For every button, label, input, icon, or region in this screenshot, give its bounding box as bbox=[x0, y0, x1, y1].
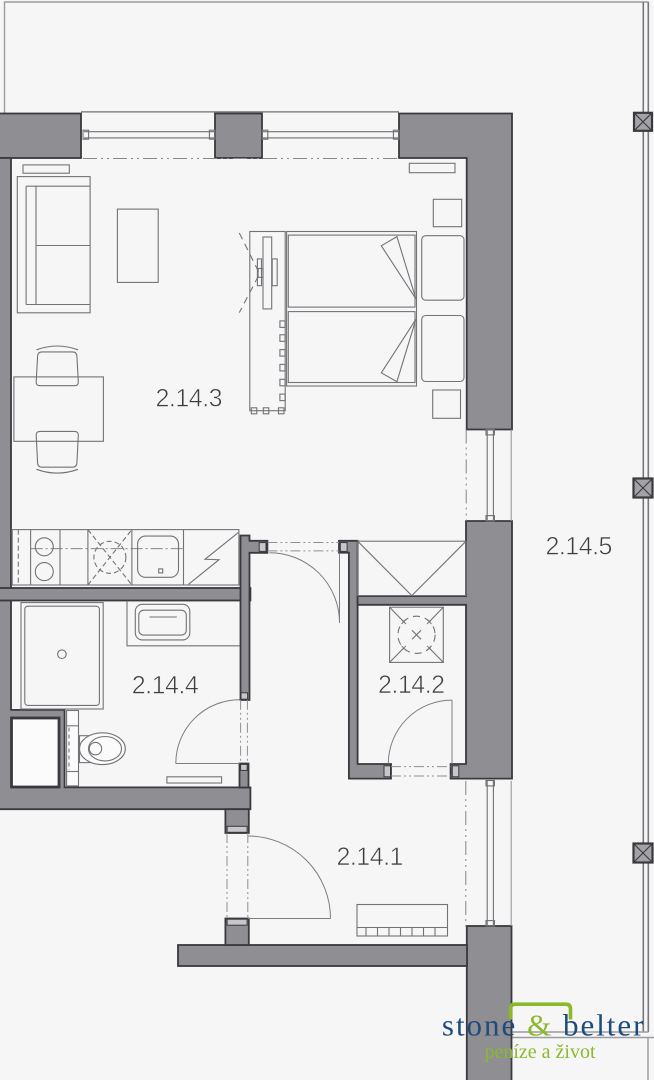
svg-text:stone & belter: stone & belter bbox=[442, 1008, 646, 1043]
svg-text:2.14.3: 2.14.3 bbox=[156, 384, 223, 412]
svg-text:peníze a život: peníze a život bbox=[484, 1041, 595, 1063]
svg-text:2.14.1: 2.14.1 bbox=[336, 843, 403, 871]
svg-text:2.14.5: 2.14.5 bbox=[545, 533, 612, 561]
svg-text:2.14.2: 2.14.2 bbox=[378, 671, 445, 699]
svg-text:2.14.4: 2.14.4 bbox=[132, 671, 199, 699]
